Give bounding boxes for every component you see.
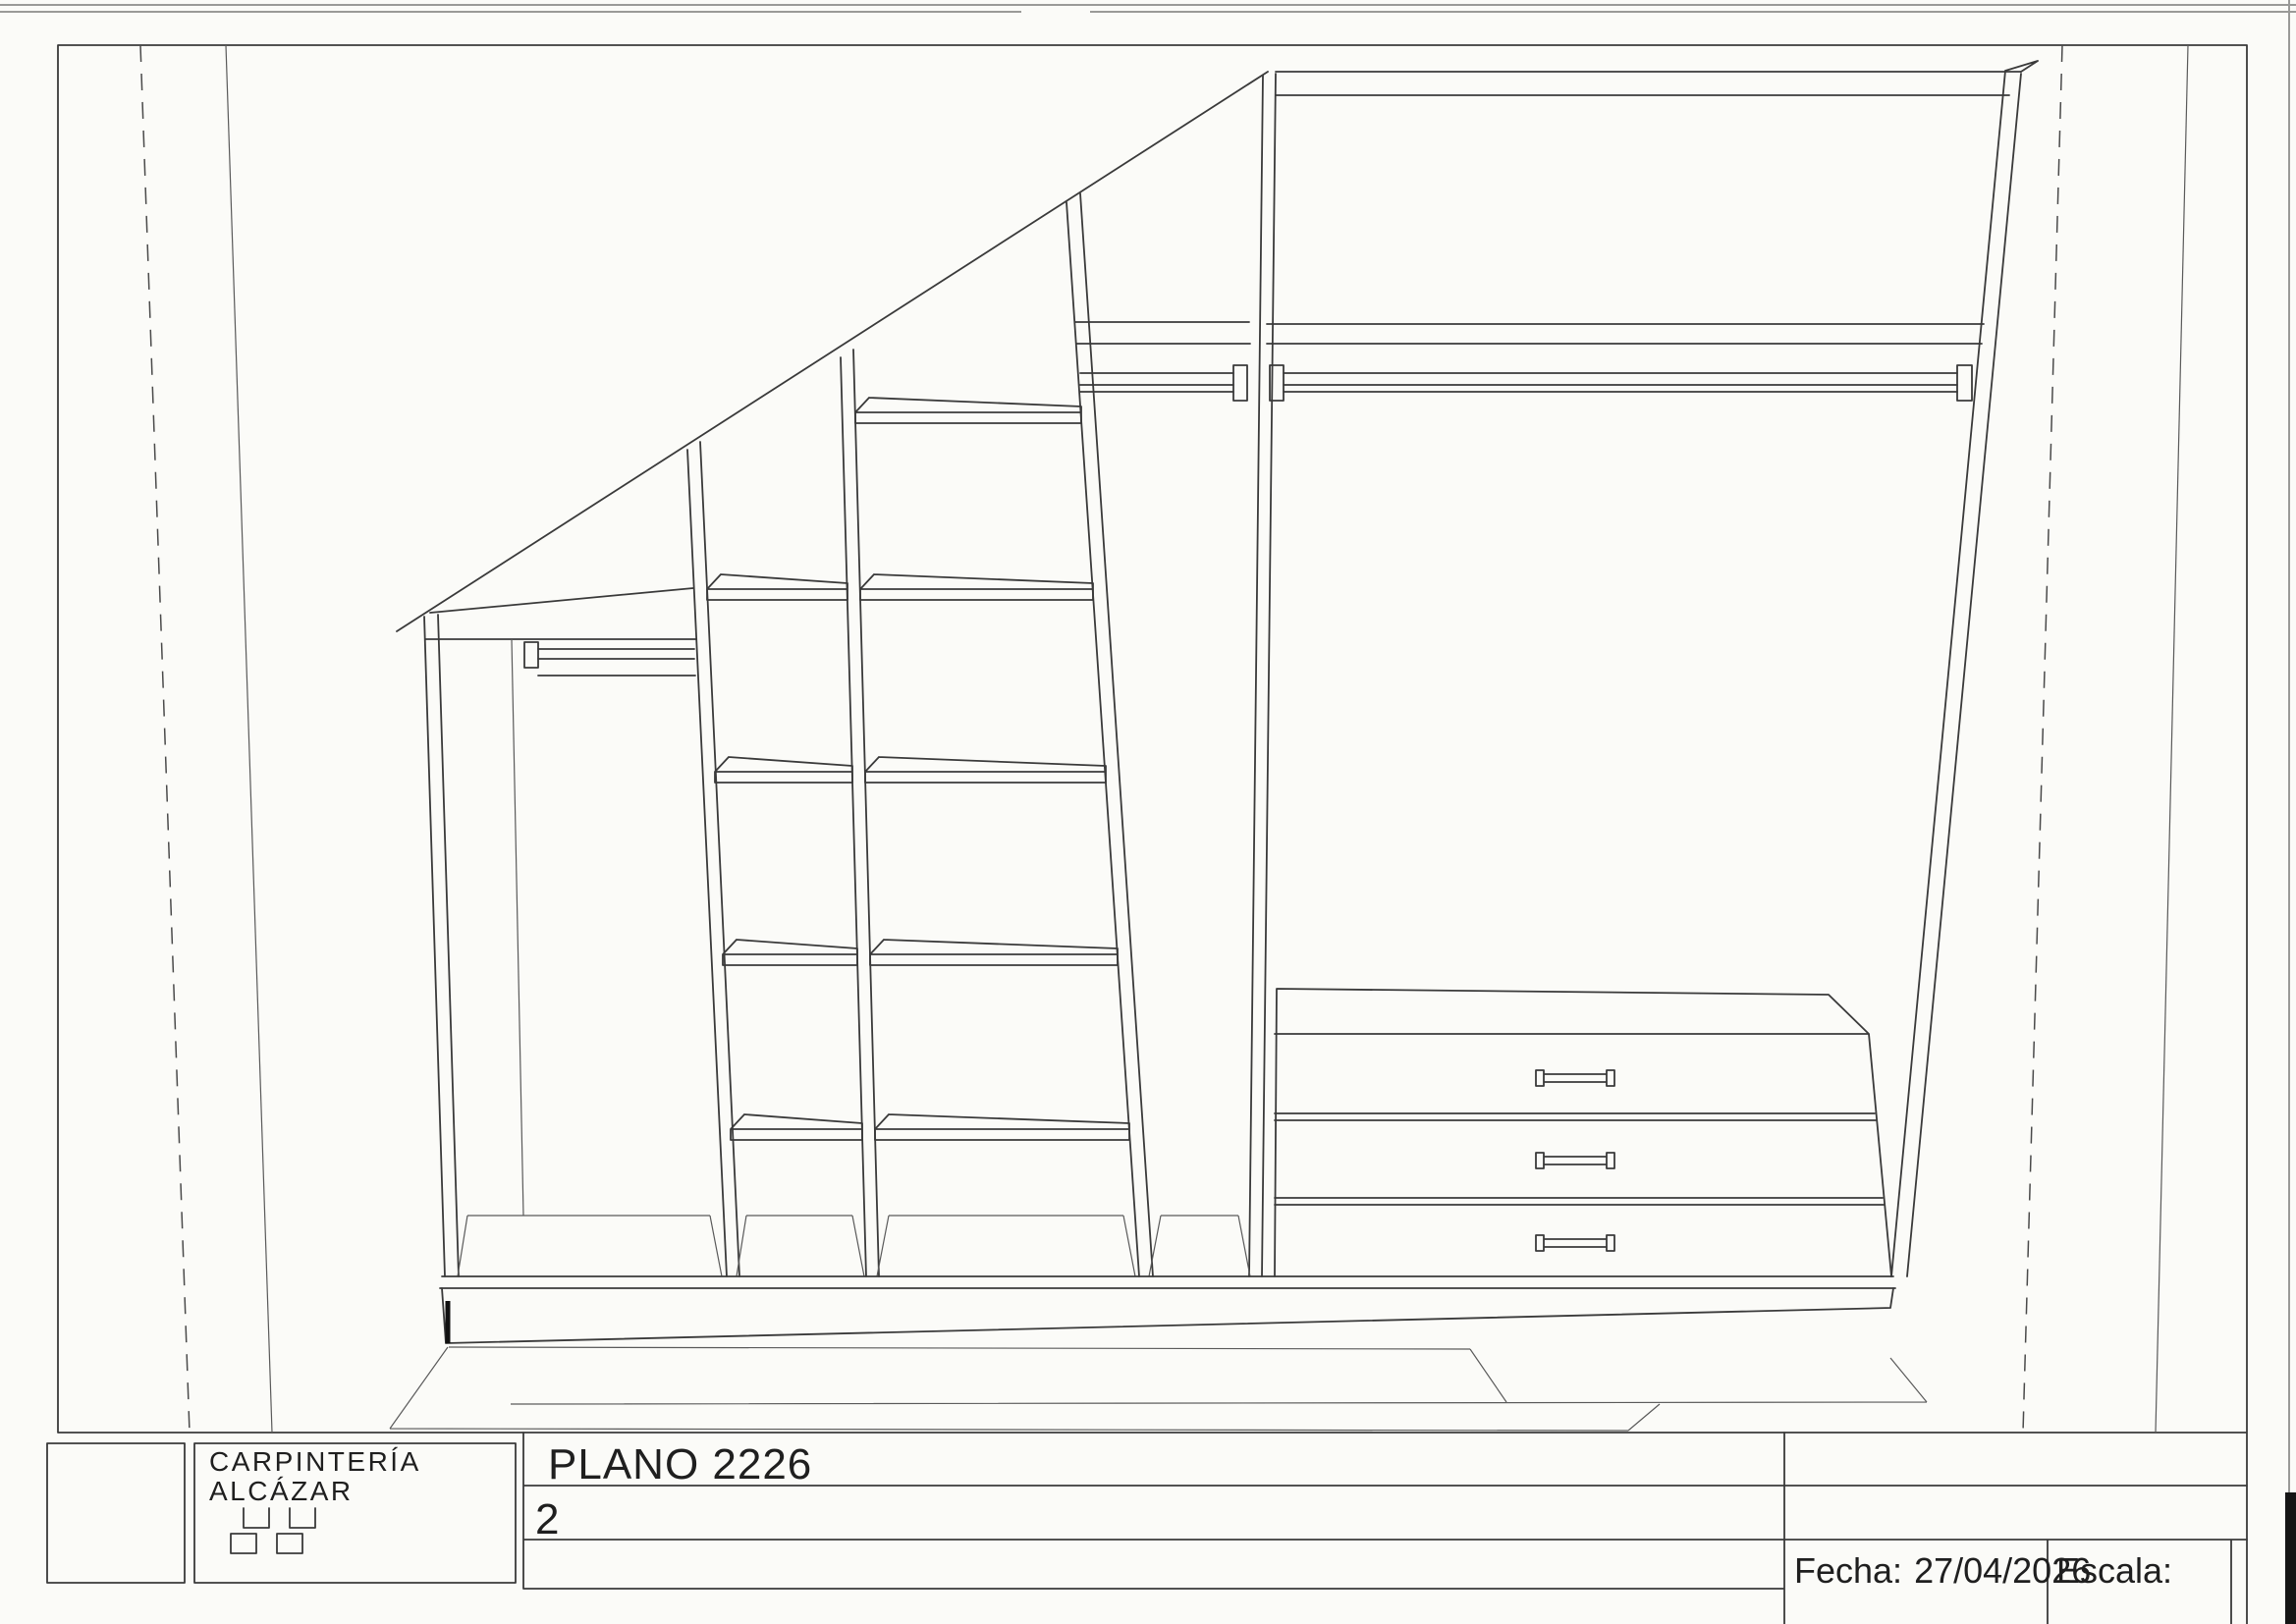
drawer-handle-icon — [1536, 1153, 1614, 1168]
plan-sheet: CARPINTERÍA ALCÁZAR PLANO 2226 2 Fecha:2… — [0, 0, 2296, 1624]
divider-panel-3 — [841, 350, 879, 1276]
logo-open-squares-icon — [244, 1508, 315, 1528]
right-hanging-rod — [1284, 373, 1957, 392]
right-gable-panel — [1891, 61, 2038, 1276]
floor-edge-far — [390, 1347, 1660, 1431]
left-section-top-panel — [425, 588, 696, 639]
plan-number: 2 — [535, 1495, 559, 1543]
date-label: Fecha: — [1794, 1550, 1902, 1591]
page-top-edge — [0, 5, 2296, 12]
wardrobe-base — [440, 1276, 1895, 1343]
vertical-panels — [424, 61, 2038, 1276]
shelf — [715, 757, 852, 783]
right-hanging-section — [1267, 72, 2021, 401]
column-floor — [877, 1216, 1135, 1276]
scale-label: Escala: — [2056, 1550, 2172, 1591]
narrow-column-rod — [1080, 373, 1233, 392]
shelf — [860, 574, 1093, 600]
drawer-unit-carcass — [1275, 989, 1891, 1276]
shelf — [723, 940, 857, 965]
company-name-line1: CARPINTERÍA — [209, 1446, 421, 1477]
title-block: CARPINTERÍA ALCÁZAR PLANO 2226 2 Fecha:2… — [47, 1433, 2247, 1624]
shelf-column-2 — [855, 398, 1135, 1276]
column-top-panel — [1075, 322, 1250, 344]
rod-bracket-icon — [1233, 365, 1247, 401]
right-section-top-panel — [1276, 72, 2021, 95]
sheet-border — [58, 45, 2247, 1624]
room-wall-lines — [140, 45, 2188, 1433]
company-logo: CARPINTERÍA ALCÁZAR — [209, 1446, 421, 1553]
divider-panel-2 — [687, 442, 739, 1276]
left-gable-panel — [424, 615, 459, 1276]
rod-bracket-icon — [1957, 365, 1972, 401]
floor-lines — [390, 1347, 1927, 1431]
shelf — [865, 757, 1106, 783]
shelf — [875, 1114, 1129, 1140]
rod-bracket-icon — [524, 642, 538, 668]
plan-drawing-svg: CARPINTERÍA ALCÁZAR PLANO 2226 2 Fecha:2… — [0, 0, 2296, 1624]
left-wall-corner-line — [226, 45, 272, 1433]
right-section-top-shelf — [1267, 324, 1984, 344]
shelf — [855, 398, 1081, 423]
date-field: Fecha:27/04/2026 — [1794, 1550, 2091, 1591]
drawer-handle-icon — [1536, 1070, 1614, 1086]
plinth — [442, 1288, 1893, 1343]
right-wall-corner-line — [2156, 45, 2188, 1433]
shelf — [707, 574, 847, 600]
shelf — [870, 940, 1118, 965]
title-block-empty-cell — [47, 1443, 185, 1583]
left-section-back-corner — [512, 639, 523, 1216]
border-lines — [58, 45, 2247, 1624]
plan-title: PLANO 2226 — [548, 1440, 812, 1489]
shelf — [731, 1114, 862, 1140]
narrow-hanging-column — [1075, 322, 1250, 1276]
divider-panel-4 — [1066, 193, 1153, 1276]
column-floor — [737, 1216, 864, 1276]
floor-edge-mid — [511, 1358, 1927, 1404]
divider-panel-5 — [1249, 74, 1276, 1276]
drawer-separator — [1275, 1198, 1884, 1205]
shelf-column-1 — [707, 574, 864, 1276]
drawer-handle-icon — [1536, 1235, 1614, 1251]
left-wall-hidden-line — [140, 45, 190, 1433]
drawer-unit — [1275, 989, 1891, 1276]
column-floor — [1149, 1216, 1250, 1276]
company-name-line2: ALCÁZAR — [209, 1476, 354, 1506]
floor-edge-near — [449, 1347, 1506, 1402]
left-section-floor — [458, 1216, 722, 1276]
right-wall-hidden-line — [2023, 45, 2062, 1433]
bottom-board — [440, 1276, 1895, 1288]
scan-black-corner — [2285, 1492, 2296, 1624]
logo-squares-icon — [231, 1534, 302, 1553]
wardrobe-elevation — [390, 61, 2038, 1431]
left-hanging-section — [425, 588, 722, 1276]
drawer-separator — [1275, 1113, 1876, 1120]
sloped-ceiling-line — [397, 72, 1268, 631]
left-hanging-rod — [538, 649, 695, 676]
